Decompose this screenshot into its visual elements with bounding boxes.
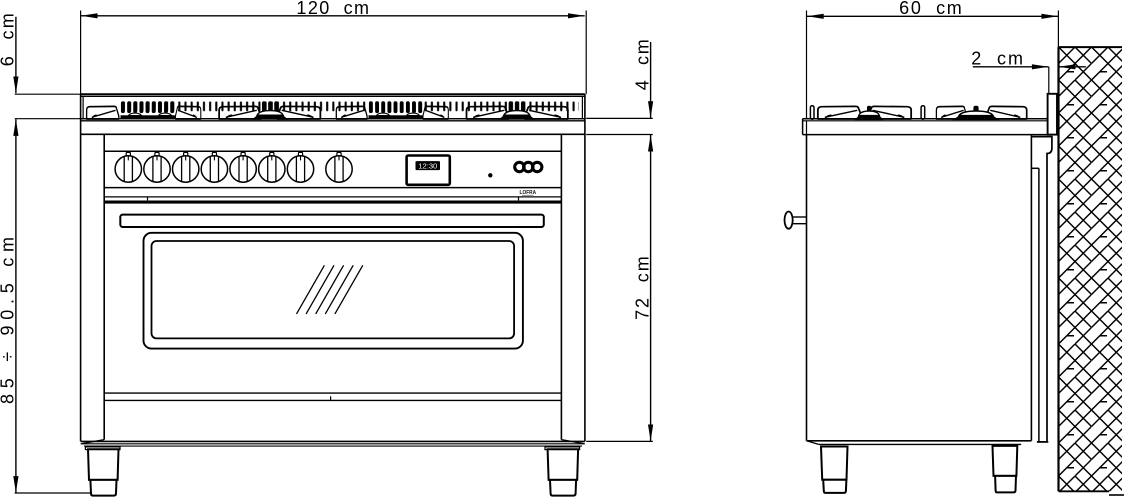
svg-text:6 cm: 6 cm bbox=[0, 13, 17, 66]
svg-text:72 cm: 72 cm bbox=[633, 256, 653, 320]
svg-text:2 cm: 2 cm bbox=[971, 49, 1023, 69]
svg-text:60 cm: 60 cm bbox=[899, 0, 962, 18]
svg-text:12:30: 12:30 bbox=[418, 163, 437, 170]
svg-text:85 ÷ 90.5 cm: 85 ÷ 90.5 cm bbox=[0, 237, 18, 404]
svg-text:120 cm: 120 cm bbox=[296, 0, 369, 18]
svg-text:4 cm: 4 cm bbox=[632, 39, 652, 90]
